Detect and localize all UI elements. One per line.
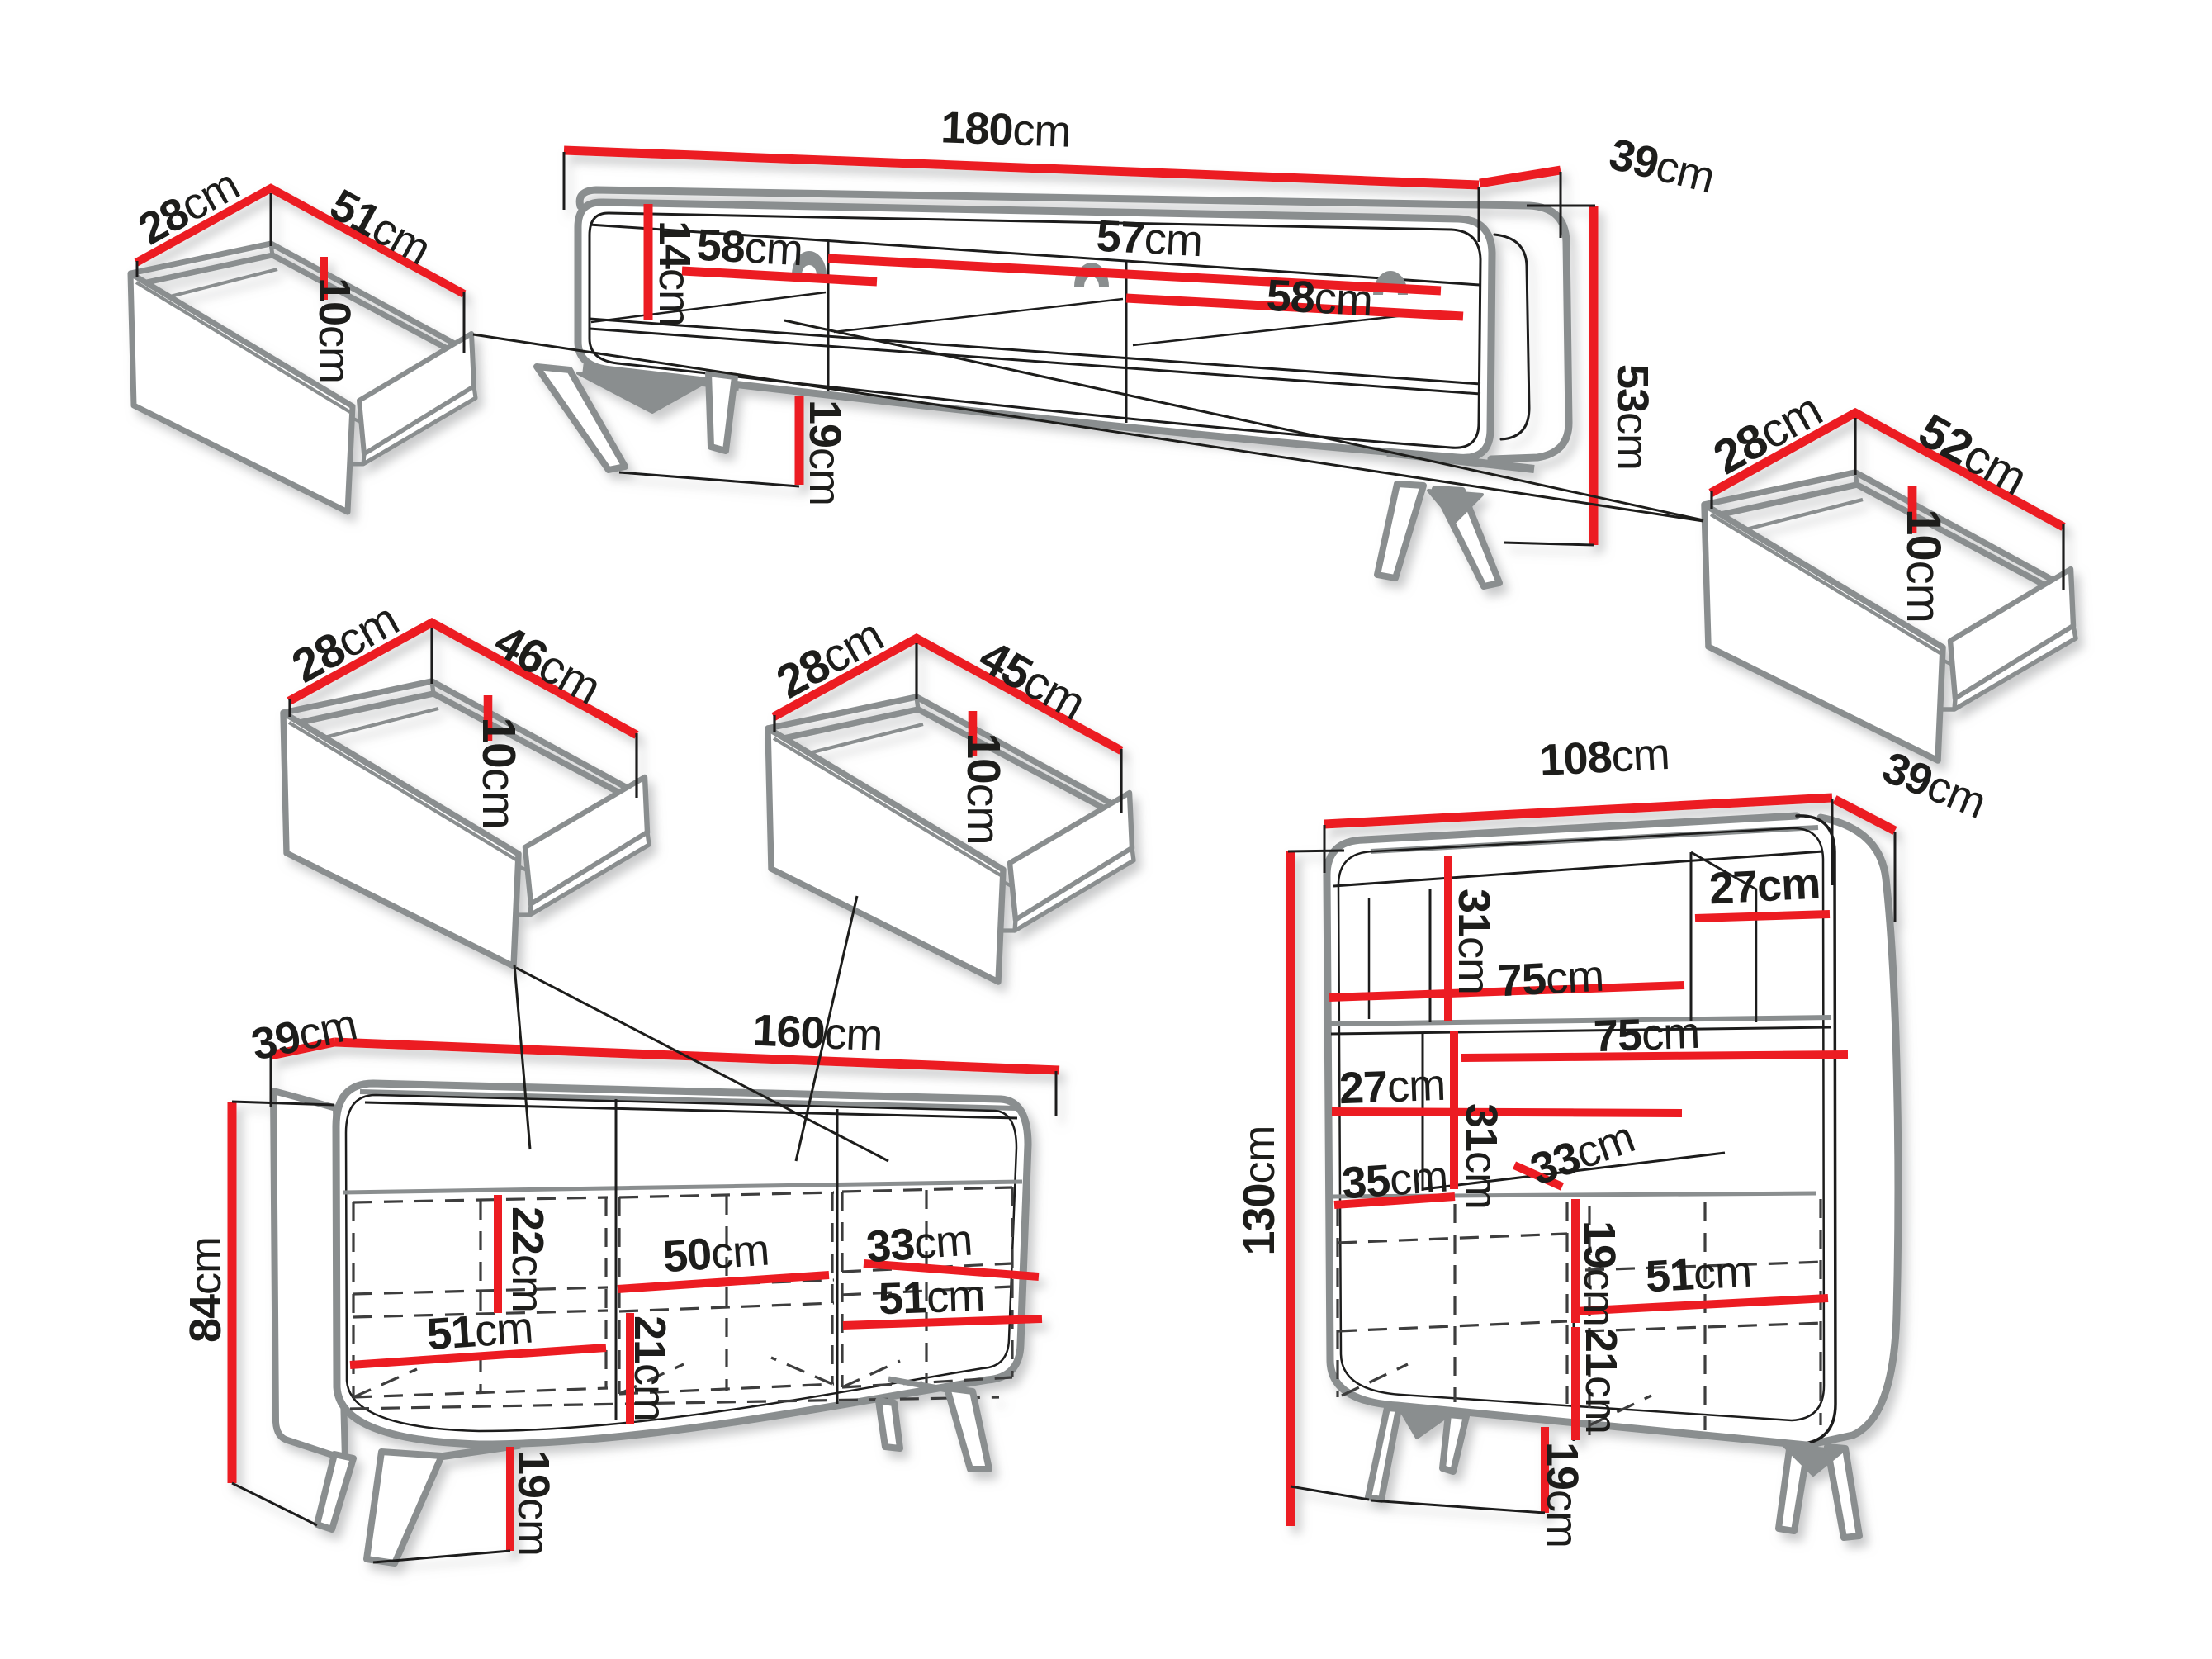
svg-text:58cm: 58cm	[695, 220, 803, 276]
svg-text:21cm: 21cm	[1576, 1328, 1626, 1434]
svg-text:51cm: 51cm	[425, 1303, 534, 1360]
svg-text:27cm: 27cm	[1708, 859, 1821, 914]
svg-text:53cm: 53cm	[1608, 364, 1657, 470]
svg-text:19cm: 19cm	[1575, 1221, 1624, 1326]
svg-text:19cm: 19cm	[800, 400, 850, 505]
svg-text:58cm: 58cm	[1265, 271, 1373, 326]
svg-text:10cm: 10cm	[1897, 509, 1950, 623]
svg-text:19cm: 19cm	[1537, 1442, 1587, 1548]
svg-text:27cm: 27cm	[1338, 1060, 1446, 1113]
svg-text:21cm: 21cm	[625, 1315, 675, 1421]
svg-text:35cm: 35cm	[1340, 1152, 1449, 1209]
svg-text:51cm: 51cm	[878, 1271, 985, 1324]
svg-text:22cm: 22cm	[503, 1206, 552, 1312]
svg-text:50cm: 50cm	[661, 1225, 770, 1282]
svg-text:130cm: 130cm	[1234, 1126, 1284, 1255]
svg-text:10cm: 10cm	[472, 717, 525, 828]
svg-text:75cm: 75cm	[1593, 1008, 1700, 1061]
svg-text:31cm: 31cm	[1457, 1103, 1506, 1209]
svg-text:31cm: 31cm	[1449, 889, 1499, 994]
svg-text:33cm: 33cm	[864, 1216, 973, 1273]
svg-text:14cm: 14cm	[650, 220, 699, 326]
svg-text:108cm: 108cm	[1538, 729, 1670, 785]
svg-text:51cm: 51cm	[1645, 1247, 1753, 1302]
svg-text:19cm: 19cm	[509, 1450, 558, 1556]
svg-text:10cm: 10cm	[310, 277, 359, 383]
svg-text:57cm: 57cm	[1095, 211, 1203, 267]
svg-text:10cm: 10cm	[957, 732, 1010, 844]
svg-text:75cm: 75cm	[1497, 951, 1605, 1007]
svg-text:180cm: 180cm	[940, 102, 1071, 156]
svg-text:160cm: 160cm	[751, 1006, 883, 1061]
svg-text:84cm: 84cm	[181, 1237, 230, 1343]
